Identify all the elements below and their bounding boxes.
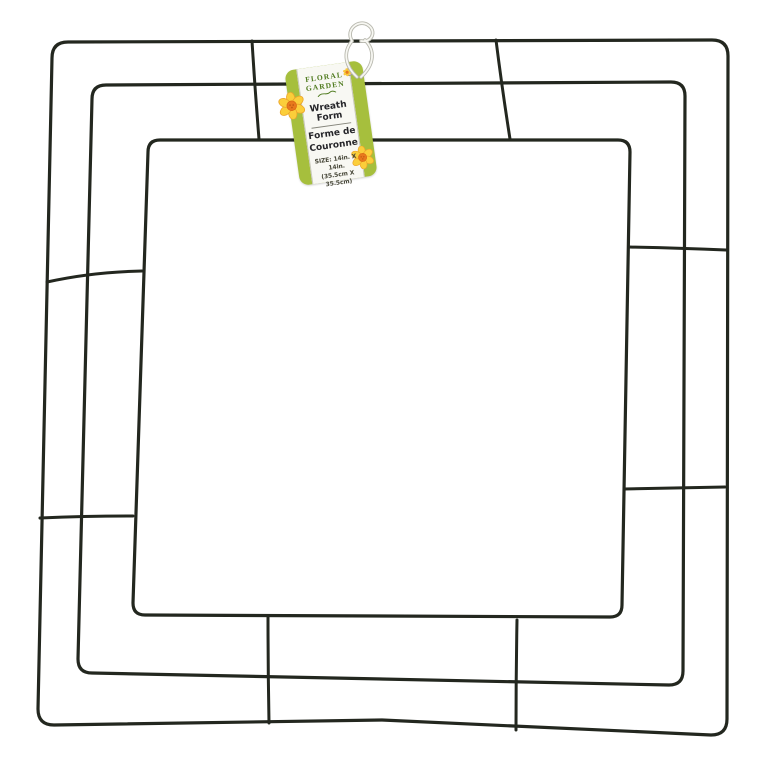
- brand-logo: FLORAL GARDEN: [298, 69, 352, 100]
- cross-brace-top-right: [496, 40, 510, 139]
- cross-brace-right-upper: [629, 247, 726, 250]
- product-photo: FLORAL GARDEN: [0, 0, 768, 768]
- inner-square-wire: [133, 140, 630, 617]
- logo-flower-icon: [343, 68, 352, 77]
- cross-brace-bottom-right: [516, 620, 517, 730]
- hang-tag: FLORAL GARDEN: [284, 60, 377, 186]
- cross-brace-bottom-left: [268, 617, 269, 723]
- cross-brace-top-left: [252, 41, 259, 139]
- cross-brace-right-lower: [624, 487, 725, 489]
- cross-brace-left-lower: [40, 516, 133, 518]
- tag-product-name-fr: Forme de Couronne: [306, 125, 360, 155]
- tag-content: FLORAL GARDEN: [297, 62, 365, 190]
- cross-brace-left-upper: [47, 271, 142, 282]
- wire-frame: [0, 0, 768, 768]
- middle-square-wire: [78, 82, 685, 685]
